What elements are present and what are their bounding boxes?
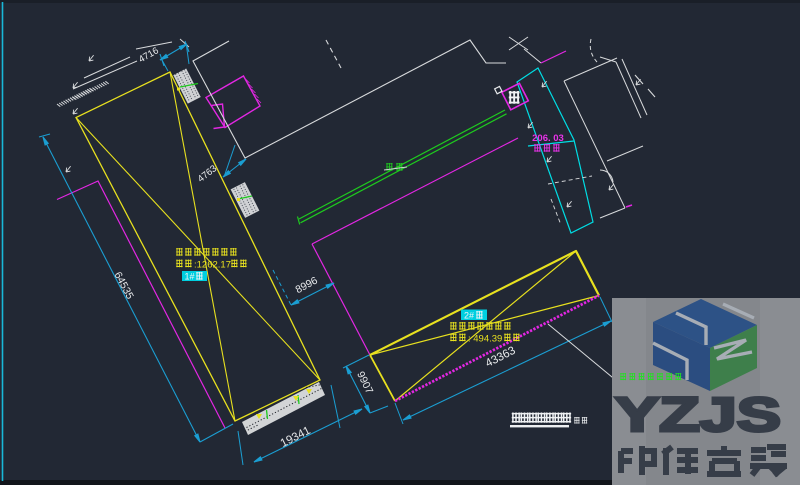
svg-text::1262.17: :1262.17 (194, 260, 231, 271)
svg-text:206. 03: 206. 03 (532, 133, 564, 144)
svg-text:YZJS: YZJS (615, 389, 781, 442)
svg-text:: 494.39: : 494.39 (468, 334, 502, 345)
svg-text:1#: 1# (185, 272, 195, 282)
svg-text:2#: 2# (464, 311, 474, 321)
